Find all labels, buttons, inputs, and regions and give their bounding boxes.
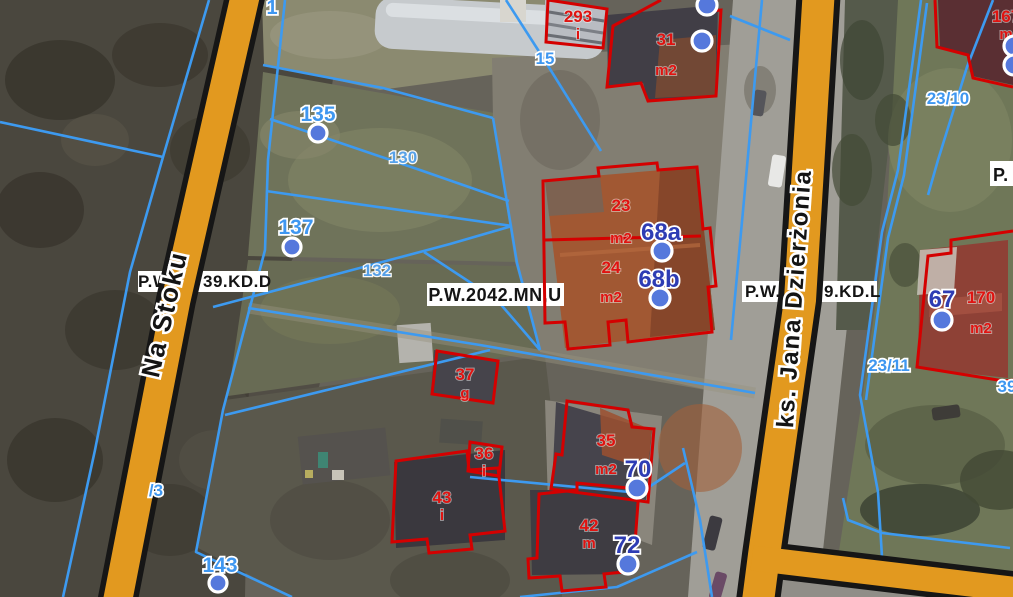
address-point-marker[interactable]	[932, 310, 952, 330]
parcel-point-marker[interactable]	[209, 574, 227, 592]
parcel-number: 23/10	[927, 89, 970, 108]
building-number-suffix: m2	[655, 62, 677, 79]
address-number: 67	[929, 286, 956, 313]
building-number: 31	[657, 30, 676, 49]
parcel-point-marker[interactable]	[309, 124, 327, 142]
building-number: 170	[967, 288, 995, 307]
plan-label-text: 9.KD.L	[824, 282, 881, 301]
building-number-suffix: i	[482, 463, 486, 480]
building-label: 42m	[580, 516, 599, 552]
address-number: 72	[614, 532, 641, 559]
parcel-number: 137	[278, 216, 313, 239]
building-number-suffix: m2	[595, 461, 617, 478]
building-number: 35	[597, 431, 616, 450]
parcel-number: 1	[266, 0, 277, 19]
building-number-suffix: m	[582, 535, 595, 552]
parcel-point-marker[interactable]	[283, 238, 301, 256]
address-point-marker[interactable]	[697, 0, 717, 15]
building-number: 167	[992, 7, 1013, 26]
building-number: 23	[612, 196, 631, 215]
building-number-suffix: i	[576, 26, 580, 43]
building-number-suffix: i	[440, 507, 444, 524]
parcel-number: /3	[149, 481, 163, 500]
address-number: 68b	[638, 266, 679, 293]
parcel-number: 23/11	[868, 356, 910, 375]
address-point-marker[interactable]	[1004, 36, 1013, 56]
plan-label-text: 39.KD.D	[203, 272, 272, 291]
building-number: 293	[564, 7, 592, 26]
address-number: 70	[625, 456, 652, 483]
address-point-marker[interactable]	[1004, 55, 1013, 75]
plan-label-text: P.	[993, 165, 1009, 185]
building-number-suffix: m2	[970, 320, 992, 337]
map-viewport[interactable]: P.W39.KD.DP.W.9.KD.L Na Stokuks. Jana Dz…	[0, 0, 1013, 597]
parcel-number: 15	[536, 49, 555, 68]
map-canvas[interactable]: P.W39.KD.DP.W.9.KD.L Na Stokuks. Jana Dz…	[0, 0, 1013, 597]
building-number: 37	[456, 365, 475, 384]
parcel-number: 39	[998, 377, 1013, 396]
parcel-number: 130	[389, 148, 417, 167]
building-number: 43	[433, 488, 452, 507]
building-number: 42	[580, 516, 599, 535]
address-number: 68a	[641, 219, 682, 246]
building-number-suffix: m2	[600, 289, 622, 306]
building-number-suffix: m2	[610, 230, 632, 247]
parcel-number: 132	[363, 261, 391, 280]
building-number: 36	[475, 444, 494, 463]
plan-label-text: P.W.	[745, 282, 781, 301]
address-point-marker[interactable]	[692, 31, 712, 51]
building-number-suffix: g	[460, 385, 469, 402]
building-number: 24	[602, 258, 621, 277]
plan-label-p-edge: P.	[990, 161, 1013, 186]
plan-label-text: P.W.2042.MN,U	[428, 285, 561, 305]
